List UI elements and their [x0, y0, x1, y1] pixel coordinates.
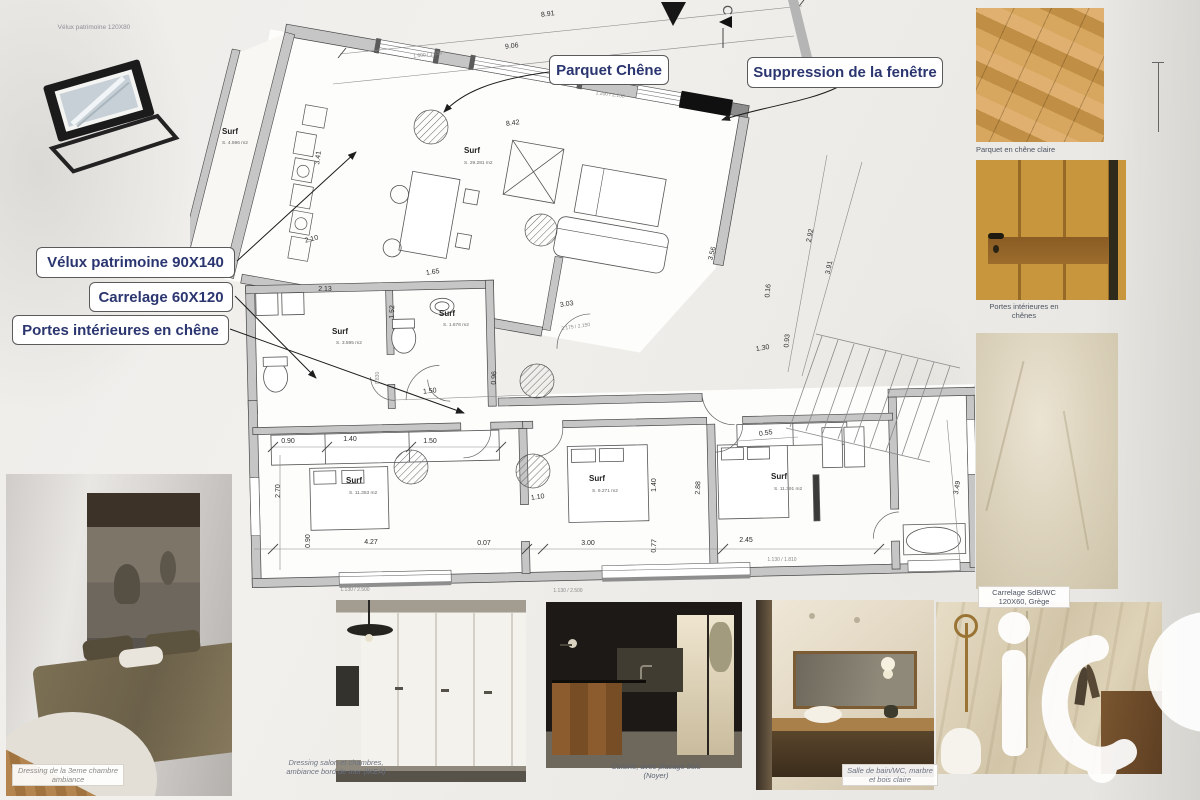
- label-text: Parquet Chêne: [556, 62, 662, 79]
- compass-letter: C: [720, 5, 736, 15]
- room-label: Surf: [464, 146, 480, 155]
- room-area: S. 1.676 m2: [443, 322, 469, 328]
- dim: 3.00: [581, 540, 595, 547]
- ceiling-spot: [854, 617, 860, 623]
- dim: 2.88: [695, 481, 703, 495]
- label-text: Vélux patrimoine 90X140: [47, 254, 224, 271]
- room-label: Surf: [346, 476, 362, 485]
- kitchen-counter-line: [552, 680, 646, 683]
- label-carrelage: Carrelage 60X120: [89, 282, 233, 312]
- toilet: [941, 728, 981, 774]
- room-label: Surf: [589, 474, 605, 483]
- velux-sketch: Vélux patrimoine 120X80: [14, 18, 184, 178]
- dim: 1.40: [651, 478, 658, 492]
- dim: 0.90: [305, 534, 312, 548]
- room-area: S. 29.281 m2: [464, 160, 493, 166]
- dim: 3.91: [825, 260, 835, 275]
- wall-lamp-arm: [560, 644, 572, 646]
- photo-parquet-sample: [976, 8, 1104, 142]
- counter-plant: [884, 705, 898, 718]
- pendant-lamp-icon: [368, 600, 370, 626]
- room-label: Surf: [439, 309, 455, 318]
- label-text: Portes intérieures en chêne: [22, 322, 219, 339]
- tv-panel: [336, 666, 359, 706]
- scan-artifact: [1158, 62, 1159, 132]
- label-text: Suppression de la fenêtre: [753, 64, 936, 81]
- dim: 4.27: [364, 539, 378, 546]
- shower-head-icon: [954, 614, 978, 638]
- door-rail: [988, 237, 1114, 264]
- photo-tile-sample: [976, 333, 1118, 589]
- mirror-light-glow: [881, 657, 895, 671]
- kitchen-cabinets-wood: [552, 682, 623, 755]
- caption-bath: Salle de bain/WC, marbre et bois claire: [842, 764, 938, 786]
- door-stiles: [976, 160, 1126, 300]
- dim: 1.130 / 2.500: [340, 587, 369, 593]
- room-area: S. 9.271 m2: [592, 488, 618, 494]
- caption-bedroom: Dressing de la 3eme chambre ambiance: [12, 764, 124, 786]
- caption-dressing: Dressing salon et chambres, ambiance bor…: [280, 758, 392, 776]
- label-velux-patrimoine: Vélux patrimoine 90X140: [36, 247, 235, 278]
- dim: 1.130 / 2.500: [553, 588, 582, 594]
- velux-window-icon: [14, 46, 184, 178]
- wardrobe-handle: [395, 687, 403, 690]
- wardrobe-handle: [441, 689, 449, 692]
- floor-plan: C Surf S. 4.596 m2 Surf S. 29.281 m2 Sur…: [190, 0, 975, 600]
- dim: 0.90: [281, 438, 295, 445]
- room-area: S. 4.596 m2: [222, 140, 248, 146]
- label-portes-interieures: Portes intérieures en chêne: [12, 315, 229, 345]
- room-area: S. 11.353 m2: [349, 490, 378, 496]
- dim: 0.16: [764, 284, 772, 298]
- caption-parquet: Parquet en chêne claire: [976, 145, 1106, 154]
- dim: 1.40: [343, 436, 357, 443]
- photo-bathroom-vanity: [756, 600, 934, 790]
- dim: 2.92: [806, 228, 816, 243]
- dim: 9.06: [505, 42, 519, 51]
- mural-tree: [160, 551, 176, 585]
- dim: 8.91: [541, 10, 555, 19]
- room-label: Surf: [771, 472, 787, 481]
- pendant-lamp-bulb: [365, 634, 373, 642]
- vanity-counter: [772, 718, 934, 731]
- dim: 2.45: [739, 537, 753, 544]
- dim: 1.50: [423, 387, 437, 395]
- mural-tree: [114, 564, 140, 604]
- door-frame-edge: [756, 600, 772, 790]
- room-label: Surf: [332, 327, 348, 336]
- dim: 2.13: [318, 286, 332, 293]
- label-suppression-fenetre: Suppression de la fenêtre: [747, 57, 943, 88]
- dim: 1.50: [423, 438, 437, 445]
- dim: 2.70: [275, 484, 282, 498]
- dim: 0.830: [375, 372, 381, 385]
- photo-dressing: [336, 600, 526, 782]
- room-area: S. 3.595 m2: [336, 340, 362, 346]
- mirror: [793, 651, 916, 708]
- dim: 0.93: [783, 334, 791, 348]
- photo-door-sample: [976, 160, 1126, 300]
- watermark-dot: [998, 612, 1030, 644]
- dim: 0.96: [491, 371, 499, 385]
- dim: 1.130 / 1.810: [767, 557, 796, 563]
- photo-kitchen: [546, 602, 742, 768]
- room-label: Surf: [222, 127, 238, 136]
- wardrobe-handle: [484, 691, 492, 694]
- label-text: Carrelage 60X120: [98, 289, 223, 306]
- door-handle-icon: [988, 233, 1004, 239]
- room-area: S. 11.391 m2: [774, 486, 803, 492]
- dim: 1.52: [389, 305, 396, 319]
- velux-sketch-label: Vélux patrimoine 120X80: [52, 24, 136, 32]
- north-arrow-icon: C: [661, 0, 812, 58]
- watermark-stem: [1002, 650, 1026, 756]
- caption-tile: Carrelage SdB/WC 120X60, Grège: [978, 586, 1070, 608]
- photo-bedroom: [6, 474, 232, 796]
- label-parquet-chene: Parquet Chêne: [549, 55, 669, 85]
- scanned-renovation-plan-page: { "velux_sketch": { "label": "Vélux patr…: [0, 0, 1200, 800]
- dim: 0.07: [477, 540, 491, 547]
- tile-vein: [1063, 411, 1089, 550]
- dim: 0.77: [651, 539, 659, 553]
- kitchen-faucet-icon: [640, 665, 652, 679]
- door-handle-dot: [993, 245, 999, 253]
- ceiling-spot: [809, 613, 815, 619]
- door-edge-strip: [1109, 160, 1118, 300]
- dim: 1.30: [755, 344, 770, 353]
- tile-vein: [986, 361, 1025, 511]
- caption-kitchen: Cuisine, avec placage bois (Noyer): [604, 762, 708, 780]
- caption-door: Portes intérieures en chênes: [978, 302, 1070, 320]
- window-greenery: [709, 622, 733, 672]
